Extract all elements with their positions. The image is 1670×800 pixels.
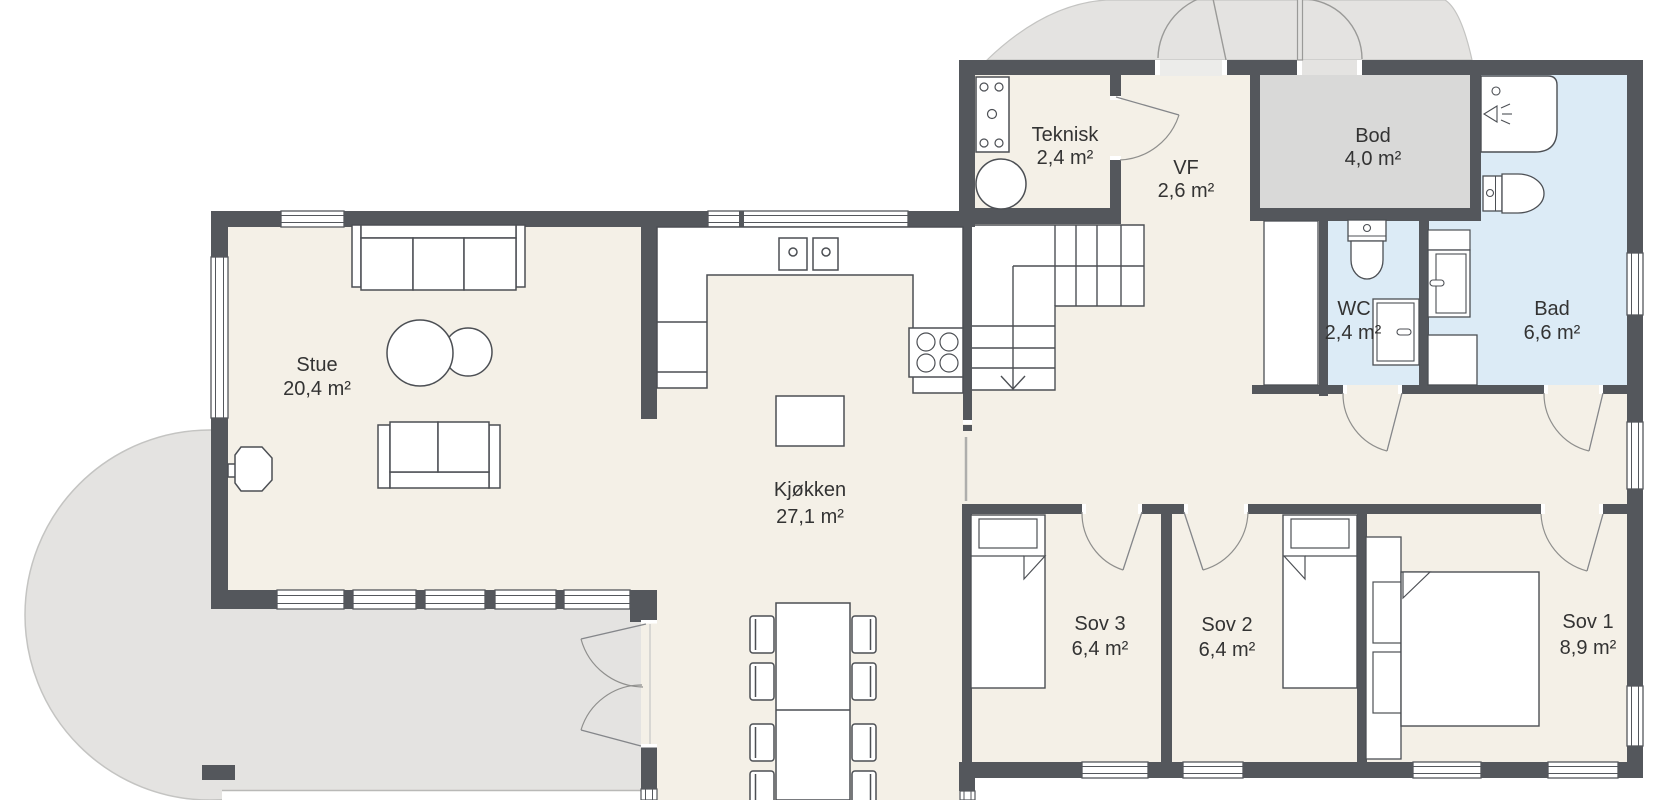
svg-text:Kjøkken: Kjøkken: [774, 479, 846, 501]
svg-text:6,4 m²: 6,4 m²: [1199, 639, 1256, 661]
svg-text:Stue: Stue: [296, 354, 337, 376]
svg-text:20,4 m²: 20,4 m²: [283, 378, 351, 400]
svg-text:2,6 m²: 2,6 m²: [1158, 180, 1215, 202]
svg-text:6,6 m²: 6,6 m²: [1524, 322, 1581, 344]
svg-text:6,4 m²: 6,4 m²: [1072, 638, 1129, 660]
svg-text:8,9 m²: 8,9 m²: [1560, 637, 1617, 659]
svg-text:Bad: Bad: [1534, 298, 1570, 320]
svg-text:VF: VF: [1173, 157, 1199, 179]
svg-text:2,4 m²: 2,4 m²: [1325, 322, 1382, 344]
svg-text:27,1 m²: 27,1 m²: [776, 506, 844, 528]
svg-text:WC: WC: [1337, 298, 1370, 320]
svg-text:2,4 m²: 2,4 m²: [1037, 147, 1094, 169]
svg-text:Teknisk: Teknisk: [1032, 124, 1100, 146]
svg-text:Sov 1: Sov 1: [1562, 611, 1613, 633]
svg-text:Bod: Bod: [1355, 125, 1391, 147]
svg-text:4,0 m²: 4,0 m²: [1345, 148, 1402, 170]
svg-text:Sov 3: Sov 3: [1074, 613, 1125, 635]
svg-text:Sov 2: Sov 2: [1201, 614, 1252, 636]
